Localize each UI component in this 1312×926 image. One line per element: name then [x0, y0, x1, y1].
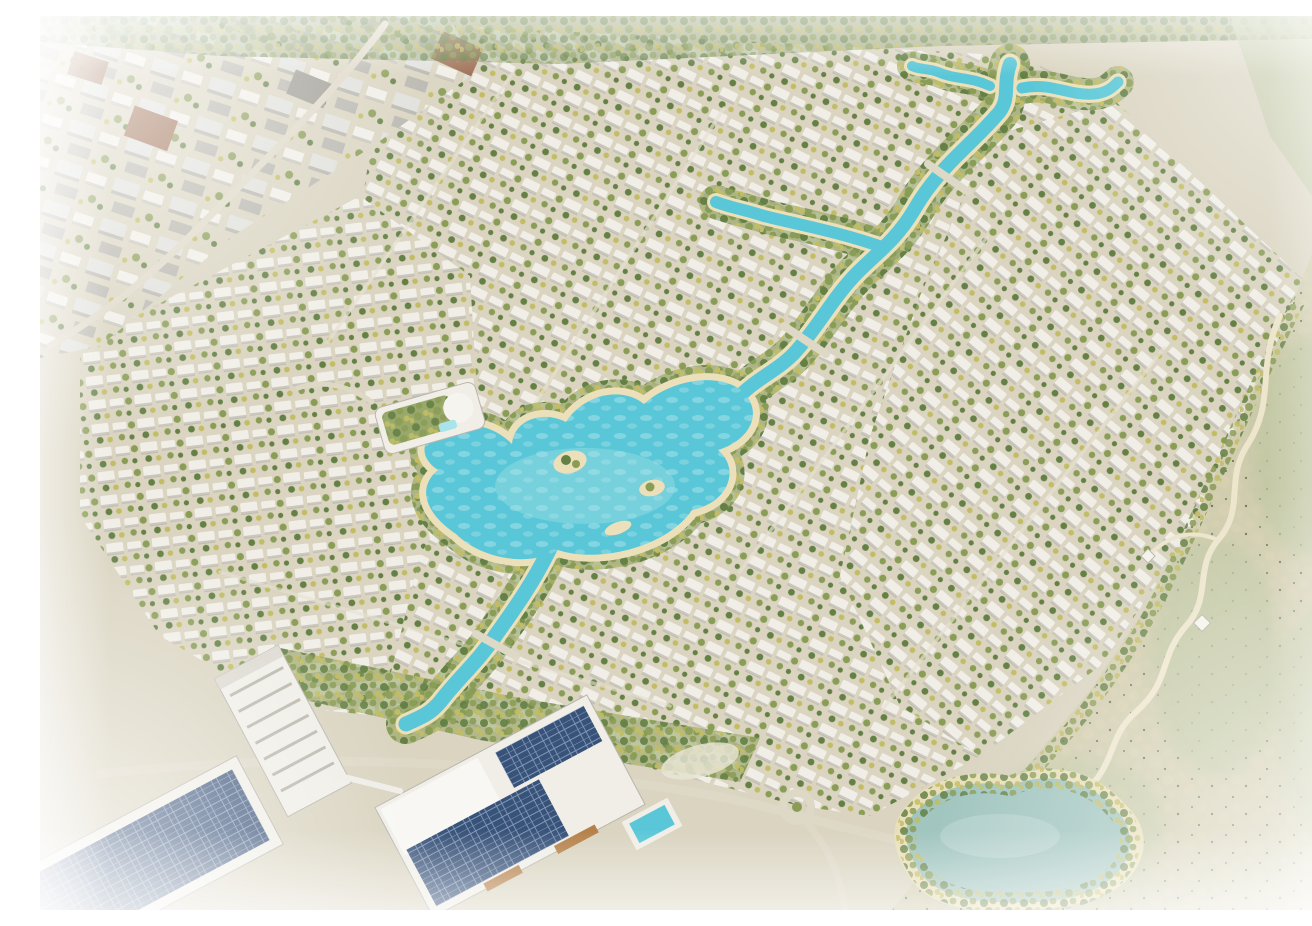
scene-canvas [40, 16, 1312, 910]
aerial-render-image [40, 16, 1312, 910]
edge-haze-vignette [40, 16, 1312, 910]
